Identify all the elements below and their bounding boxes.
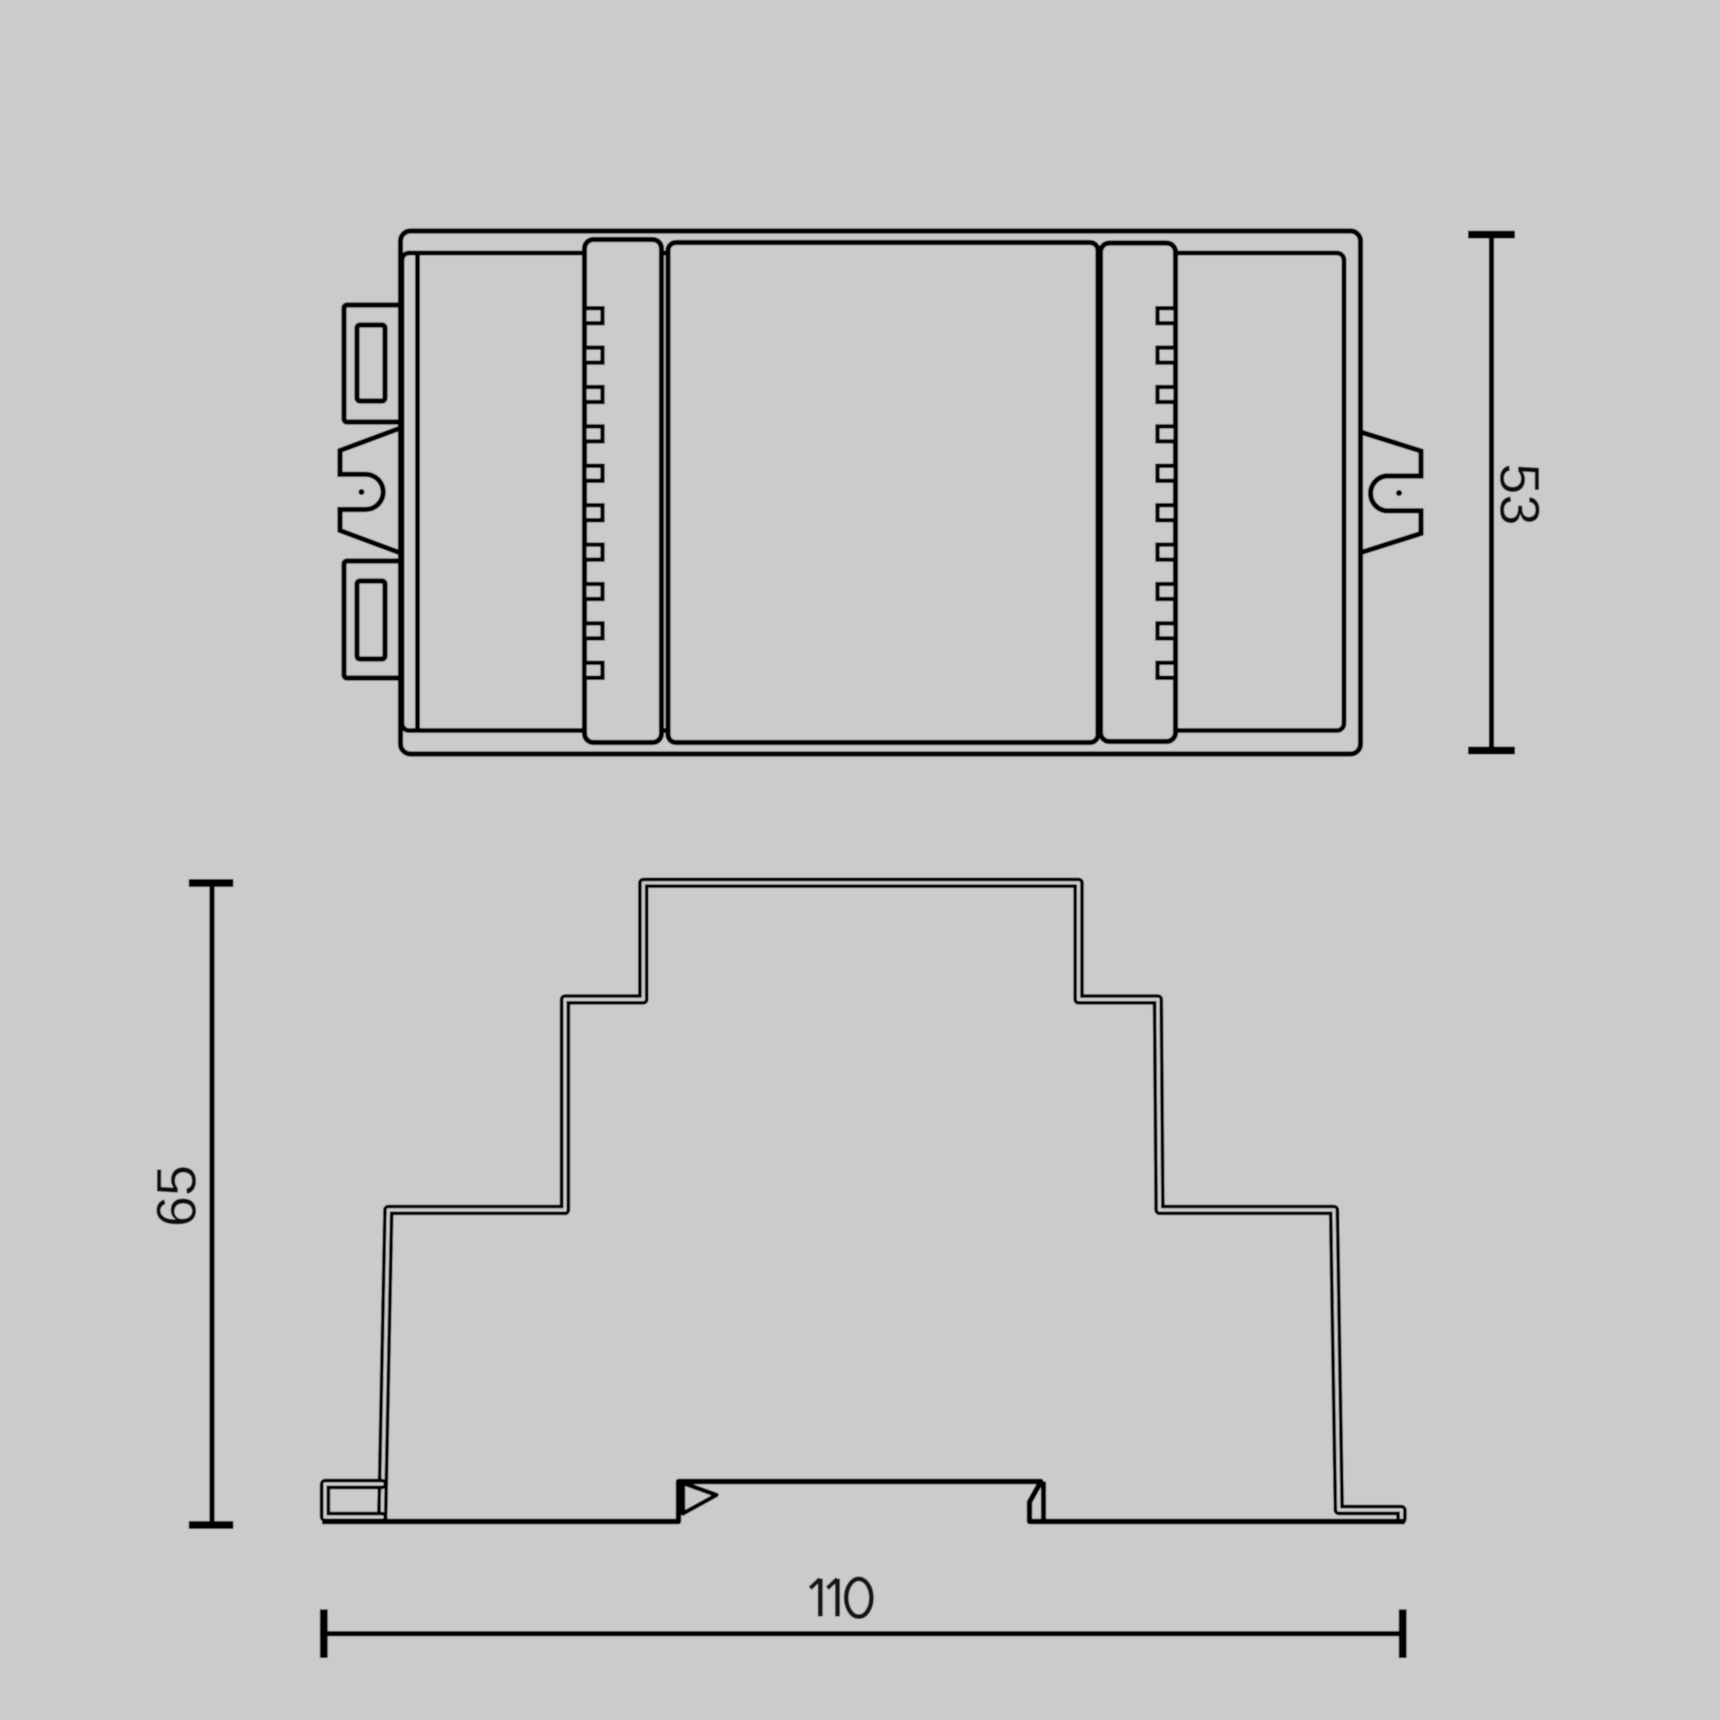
svg-text:53: 53 [1489,463,1552,525]
svg-text:65: 65 [145,1165,208,1227]
